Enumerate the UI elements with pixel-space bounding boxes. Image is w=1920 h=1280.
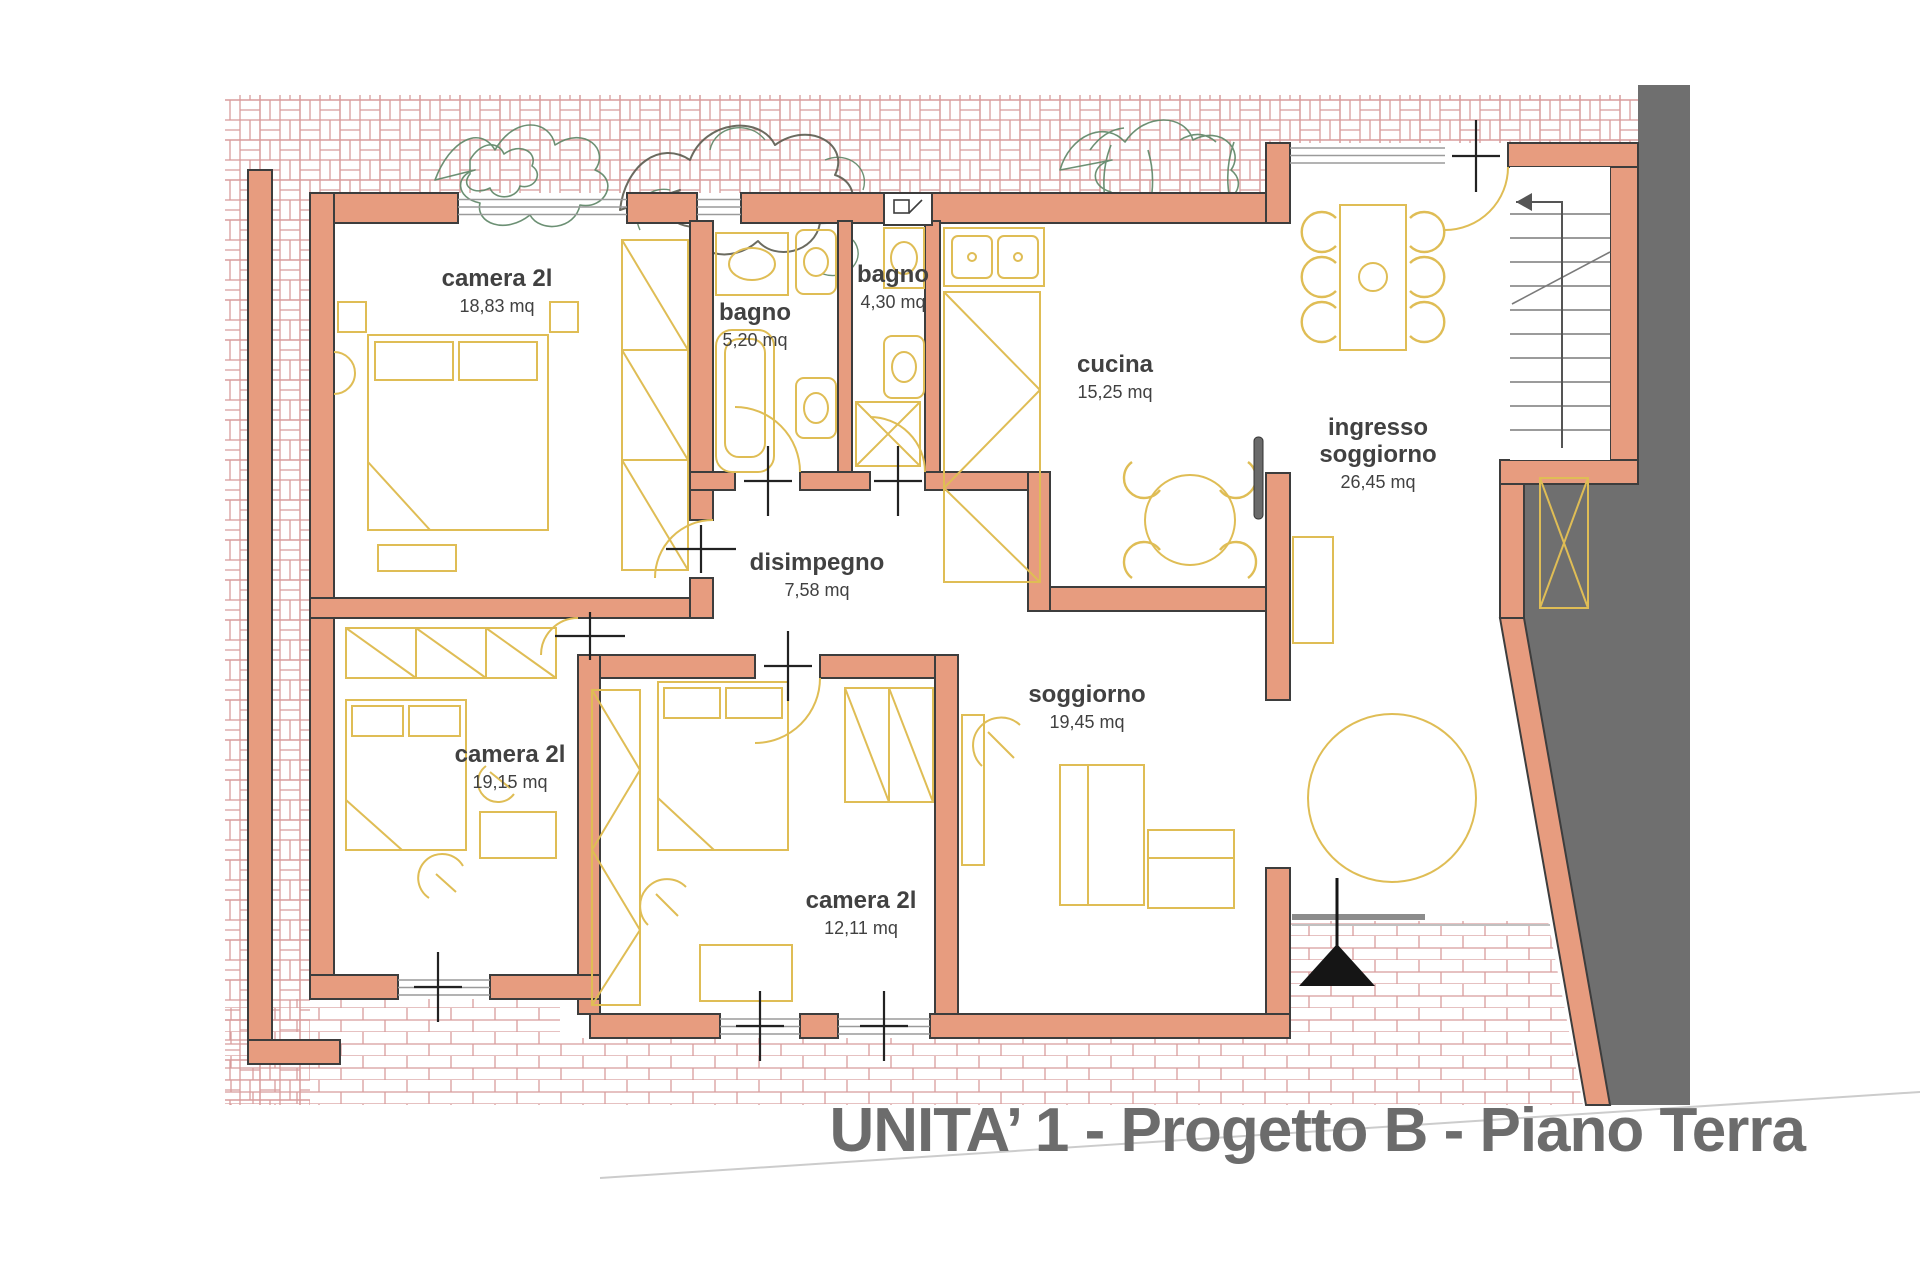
round-rug (1308, 714, 1476, 882)
bed-camera2 (346, 628, 556, 898)
furniture (334, 167, 1588, 1005)
bed-camera1 (338, 302, 578, 571)
kitchen-table (1124, 462, 1256, 578)
wardrobe-camera1 (622, 240, 688, 570)
staircase (1510, 167, 1610, 460)
vent-shaft-icon (884, 193, 932, 225)
living-room-furniture (962, 715, 1234, 908)
floor-plan-page: camera 2l 18,83 mq bagno 5,20 mq bagno 4… (0, 0, 1920, 1280)
bathroom1-fixtures (716, 230, 836, 472)
floor-plan-canvas (0, 0, 1920, 1280)
door-leaf (1254, 437, 1263, 519)
bed-camera3 (592, 682, 933, 1005)
dining-table (1302, 205, 1445, 350)
bathroom2-fixtures (856, 228, 924, 466)
page-title: UNITA’ 1 - Progetto B - Piano Terra (555, 1098, 1805, 1163)
